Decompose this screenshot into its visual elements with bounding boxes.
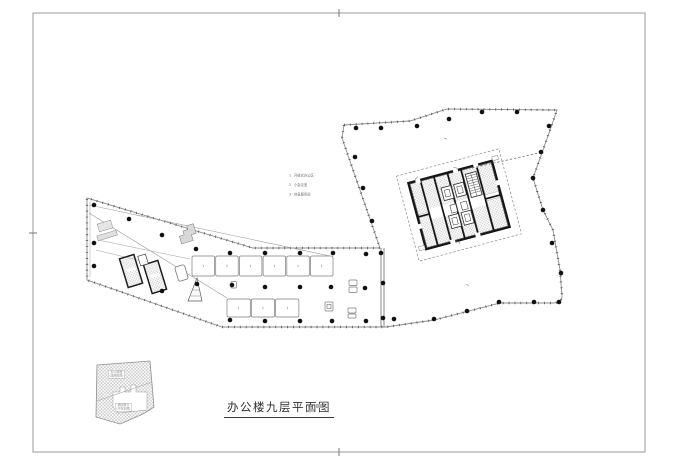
column-dot (329, 285, 334, 290)
column-dot (415, 124, 420, 129)
column-dot (263, 319, 268, 324)
key-plan-label-bottom: 裙房部分 (不在本图) (115, 403, 132, 412)
legend-item: 3休息服务间 (289, 190, 314, 200)
column-dot (550, 241, 555, 246)
drawing-sheet: 1开放式办公区 2小会议室 3休息服务间 办公塔楼 (本图范围) 裙房部分 (不… (0, 0, 673, 466)
scale-stamp-icon (307, 403, 325, 415)
column-dot (160, 289, 165, 294)
key-plan-label-top: 办公塔楼 (本图范围) (108, 370, 125, 379)
column-dot (539, 150, 544, 155)
column-dot (379, 126, 384, 131)
column-dot (230, 283, 235, 288)
column-dot (447, 117, 452, 122)
column-dot (515, 110, 520, 115)
column-dot (92, 264, 97, 269)
column-dot (263, 251, 268, 256)
column-dot (92, 203, 97, 208)
column-dot (92, 241, 97, 246)
column-dot (298, 319, 303, 324)
floor-plan-svg (0, 0, 673, 466)
workstation-row-bottom (227, 299, 299, 317)
legend-item: 2小会议室 (289, 181, 314, 191)
column-dot (331, 251, 336, 256)
column-dot (392, 317, 397, 322)
column-dot (127, 217, 132, 222)
column-dot (541, 208, 546, 213)
column-dot (298, 251, 303, 256)
legend: 1开放式办公区 2小会议室 3休息服务间 (289, 171, 314, 200)
column-dot (364, 319, 369, 324)
column-dot (465, 309, 470, 314)
column-dot (370, 219, 375, 224)
column-dot (354, 126, 359, 131)
column-dot (381, 316, 386, 321)
column-dot (195, 282, 200, 287)
column-dot (557, 300, 562, 305)
key-plan (96, 361, 154, 424)
column-dot (480, 110, 485, 115)
column-dot (361, 186, 366, 191)
legend-item: 1开放式办公区 (289, 171, 314, 181)
column-dot (379, 251, 384, 256)
column-dot (363, 286, 368, 291)
column-dot (353, 155, 358, 160)
column-dot (531, 176, 536, 181)
column-dot (497, 300, 502, 305)
column-dot (364, 252, 369, 257)
column-dot (432, 317, 437, 322)
column-dot (298, 285, 303, 290)
column-dot (559, 271, 564, 276)
column-dot (194, 247, 199, 252)
column-dot (381, 281, 386, 286)
column-dot (160, 233, 165, 238)
column-dot (263, 285, 268, 290)
column-dot (228, 251, 233, 256)
column-dot (228, 318, 233, 323)
column-dot (330, 319, 335, 324)
column-dot (532, 300, 537, 305)
column-dot (547, 124, 552, 129)
